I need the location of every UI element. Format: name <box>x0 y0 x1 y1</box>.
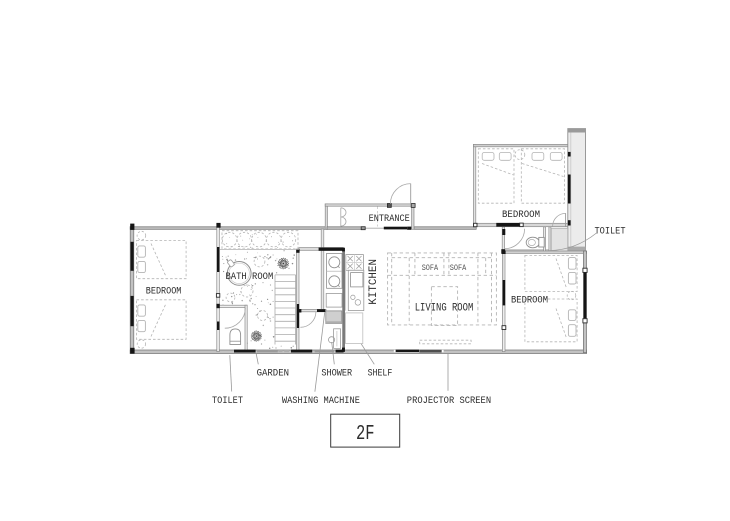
svg-text:SHELF: SHELF <box>368 367 393 379</box>
svg-text:TOILET: TOILET <box>595 226 626 238</box>
svg-text:KITCHEN: KITCHEN <box>368 259 380 305</box>
svg-text:BEDROOM: BEDROOM <box>146 285 182 297</box>
svg-text:GARDEN: GARDEN <box>257 367 289 379</box>
svg-text:2F: 2F <box>356 423 375 446</box>
svg-text:SOFA: SOFA <box>422 264 438 273</box>
svg-text:WASHING MACHINE: WASHING MACHINE <box>282 395 360 407</box>
svg-text:BEDROOM: BEDROOM <box>502 209 540 221</box>
svg-text:SHOWER: SHOWER <box>321 367 352 379</box>
svg-text:TOILET: TOILET <box>212 395 243 407</box>
svg-text:BATH ROOM: BATH ROOM <box>226 271 274 283</box>
svg-text:LIVING ROOM: LIVING ROOM <box>415 303 474 315</box>
svg-text:SOFA: SOFA <box>450 264 467 273</box>
svg-text:ENTRANCE: ENTRANCE <box>369 213 410 225</box>
svg-text:BEDROOM: BEDROOM <box>511 294 548 306</box>
svg-text:PROJECTOR SCREEN: PROJECTOR SCREEN <box>407 395 491 407</box>
